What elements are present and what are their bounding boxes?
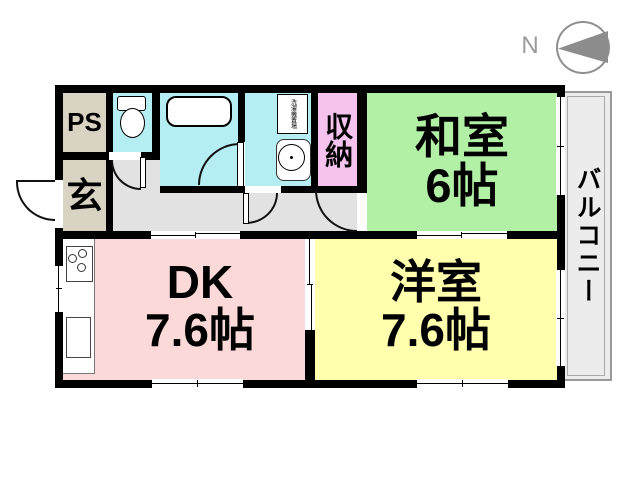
japanese-room-doorway [357,190,367,231]
wall-wash-storage [311,93,318,193]
hall-dk-sliding-door [151,231,240,239]
bathroom-door-panel [237,142,244,187]
compass-north-label: N [517,33,543,59]
stove-burner-icon [68,254,77,263]
bathtub [166,96,232,127]
floor-plan-canvas: N バルコニー [0,0,640,480]
wall-top [55,85,565,93]
entrance-label: 玄 [63,160,106,231]
wall-toilet-bath [152,93,160,160]
stove-burner-icon [77,263,86,272]
wall-bath-wash [238,93,245,142]
japanese-room-name: 和室 [415,113,509,162]
western-room-label: 洋室 7.6帖 [315,239,557,374]
kitchen-window [55,266,63,312]
japanese-room-balcony-window [556,97,565,195]
washbasin-drain-icon [290,156,293,159]
toilet-bowl [120,108,145,138]
washing-machine-space: 洗濯機置場 [277,94,308,134]
washing-machine-label: 洗濯機置場 [290,99,296,129]
dk-name: DK [167,259,233,307]
japanese-room-label: 和室 6帖 [367,96,557,228]
western-room-window [417,379,508,388]
dk-western-sliding-door [305,239,315,330]
toilet-door-panel [140,157,146,188]
washroom-door-opening [245,186,281,193]
entrance-opening [55,180,63,228]
balcony-label: バルコニー [564,93,610,379]
washroom-door-panel [243,193,249,224]
kitchen-sink [66,317,91,358]
wall-storage-japanese [357,85,367,190]
ps-label: PS [63,93,106,152]
dk-label: DK 7.6帖 [95,239,305,374]
japanese-room-size: 6帖 [425,162,498,211]
western-room-size: 7.6帖 [381,307,491,355]
western-room-name: 洋室 [390,259,482,307]
entrance-door-arc [16,182,55,221]
japanese-western-sliding-door [417,231,507,239]
wall-dk-western-lower [305,330,315,388]
stove-burner-icon [78,249,87,258]
western-room-balcony-window [556,270,565,366]
storage-label: 収納 [318,93,357,186]
dk-size: 7.6帖 [145,307,255,355]
toilet-door-opening [109,152,141,160]
dk-window [152,379,243,388]
balcony-area: バルコニー [562,91,612,381]
